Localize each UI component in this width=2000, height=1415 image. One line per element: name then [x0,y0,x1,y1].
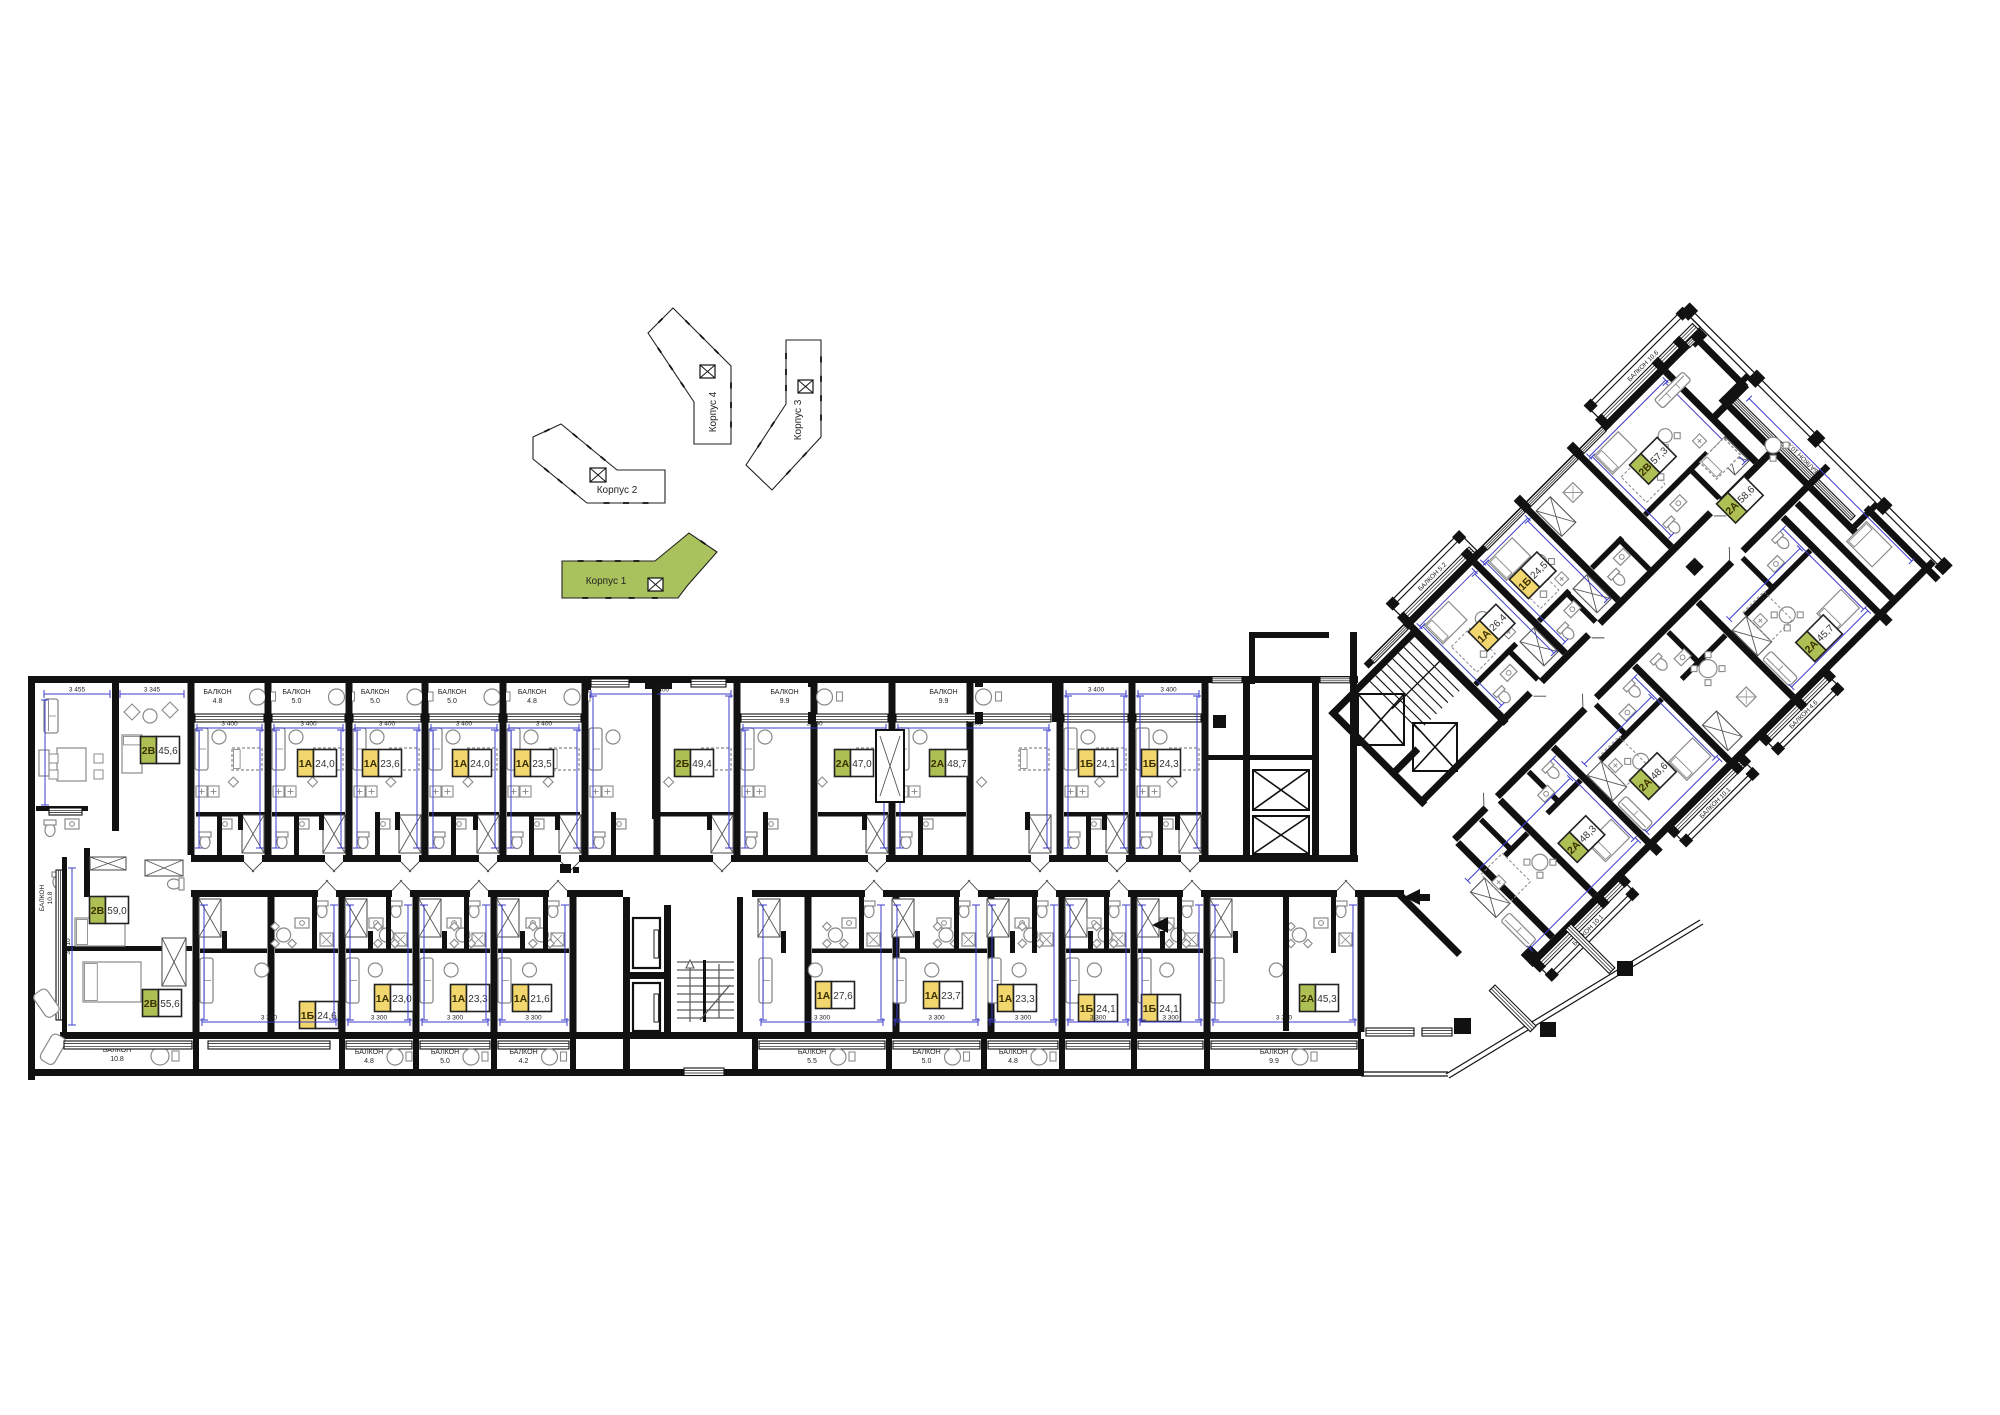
svg-text:БАЛКОН: БАЛКОН [282,689,310,696]
svg-text:1А: 1А [999,993,1013,1005]
svg-text:2А: 2А [931,758,945,770]
svg-text:10.8: 10.8 [110,1056,124,1063]
svg-text:БАЛКОН: БАЛКОН [361,689,389,696]
svg-text:9.9: 9.9 [939,698,949,705]
svg-text:1Б: 1Б [1080,758,1094,770]
svg-text:2А: 2А [836,758,850,770]
svg-text:24,3: 24,3 [1159,759,1179,770]
svg-text:3 300: 3 300 [814,1015,831,1022]
svg-text:23,0: 23,0 [392,994,412,1005]
svg-text:4.8: 4.8 [1008,1058,1018,1065]
svg-text:1А: 1А [925,990,939,1002]
svg-text:1Б: 1Б [1143,758,1157,770]
svg-text:4.8: 4.8 [213,698,223,705]
svg-text:9.9: 9.9 [1269,1058,1279,1065]
svg-text:3 400: 3 400 [456,721,473,728]
svg-text:24,0: 24,0 [470,759,490,770]
svg-text:23,5: 23,5 [532,759,552,770]
svg-text:5.5: 5.5 [807,1058,817,1065]
svg-text:10.8: 10.8 [47,891,54,904]
svg-text:2В: 2В [144,998,158,1010]
svg-text:21,6: 21,6 [530,994,550,1005]
svg-text:24,0: 24,0 [315,759,335,770]
svg-text:23,6: 23,6 [380,759,400,770]
svg-text:Корпус 4: Корпус 4 [708,391,719,432]
svg-text:2А: 2А [1301,993,1315,1005]
svg-text:1А: 1А [516,758,530,770]
svg-text:9.9: 9.9 [780,698,790,705]
svg-text:3 455: 3 455 [69,687,86,694]
svg-text:5.0: 5.0 [370,698,380,705]
svg-text:1А: 1А [514,993,528,1005]
svg-text:5.0: 5.0 [440,1058,450,1065]
svg-text:БАЛКОН: БАЛКОН [1260,1049,1288,1056]
svg-text:3 300: 3 300 [928,1015,945,1022]
svg-text:55,6: 55,6 [160,999,180,1010]
svg-text:БАЛКОН: БАЛКОН [798,1049,826,1056]
svg-text:5.0: 5.0 [447,698,457,705]
svg-text:3 400: 3 400 [379,721,396,728]
svg-text:45,6: 45,6 [158,746,178,757]
svg-text:БАЛКОН: БАЛКОН [509,1049,537,1056]
svg-text:Корпус 2: Корпус 2 [597,485,638,496]
svg-text:48,7: 48,7 [947,759,967,770]
svg-text:БАЛКОН: БАЛКОН [999,1049,1027,1056]
svg-text:23,3: 23,3 [468,994,488,1005]
svg-text:3 300: 3 300 [525,1015,542,1022]
svg-text:3 300: 3 300 [1162,1015,1179,1022]
svg-text:3 400: 3 400 [1160,687,1177,694]
svg-text:БАЛКОН: БАЛКОН [770,689,798,696]
svg-text:3 300: 3 300 [261,1015,278,1022]
svg-text:24,1: 24,1 [1096,1004,1116,1015]
svg-text:3 810: 3 810 [65,938,72,955]
svg-text:БАЛКОН: БАЛКОН [929,689,957,696]
svg-text:45,3: 45,3 [1317,994,1337,1005]
svg-text:БАЛКОН: БАЛКОН [912,1049,940,1056]
svg-text:БАЛКОН: БАЛКОН [518,689,546,696]
svg-text:3 345: 3 345 [144,687,161,694]
svg-text:2В: 2В [142,745,156,757]
svg-text:3 400: 3 400 [1088,687,1105,694]
svg-text:Корпус 1: Корпус 1 [586,576,627,587]
svg-text:4.8: 4.8 [364,1058,374,1065]
svg-text:23,3: 23,3 [1015,994,1035,1005]
svg-text:БАЛКОН: БАЛКОН [203,689,231,696]
svg-text:1А: 1А [817,990,831,1002]
svg-text:1Б: 1Б [301,1010,315,1022]
svg-text:49,4: 49,4 [692,759,712,770]
svg-text:3 300: 3 300 [1015,1015,1032,1022]
svg-text:БАЛКОН: БАЛКОН [355,1049,383,1056]
svg-text:1А: 1А [454,758,468,770]
svg-text:1Б: 1Б [1143,1003,1157,1015]
svg-text:3 300: 3 300 [371,1015,388,1022]
svg-text:5.0: 5.0 [292,698,302,705]
svg-text:3 400: 3 400 [536,721,553,728]
svg-text:5.0: 5.0 [922,1058,932,1065]
svg-text:23,7: 23,7 [941,991,961,1002]
svg-text:БАЛКОН: БАЛКОН [438,689,466,696]
svg-text:3 300: 3 300 [1090,1015,1107,1022]
svg-text:24,1: 24,1 [1159,1004,1179,1015]
svg-text:59,0: 59,0 [107,906,127,917]
svg-text:24,1: 24,1 [1096,759,1116,770]
svg-text:БАЛКОН: БАЛКОН [431,1049,459,1056]
svg-text:27,6: 27,6 [833,991,853,1002]
svg-text:1Б: 1Б [1080,1003,1094,1015]
svg-text:4.2: 4.2 [519,1058,529,1065]
svg-text:1А: 1А [452,993,466,1005]
svg-text:3 400: 3 400 [221,721,238,728]
svg-text:4.8: 4.8 [527,698,537,705]
svg-text:2В: 2В [91,905,105,917]
svg-text:3 400: 3 400 [300,721,317,728]
svg-text:2Б: 2Б [676,758,690,770]
svg-text:1А: 1А [376,993,390,1005]
svg-text:Корпус 3: Корпус 3 [793,399,804,440]
svg-text:3 300: 3 300 [447,1015,464,1022]
svg-text:47,0: 47,0 [852,759,872,770]
svg-text:БАЛКОН: БАЛКОН [39,885,46,912]
svg-text:1А: 1А [364,758,378,770]
svg-text:1А: 1А [299,758,313,770]
